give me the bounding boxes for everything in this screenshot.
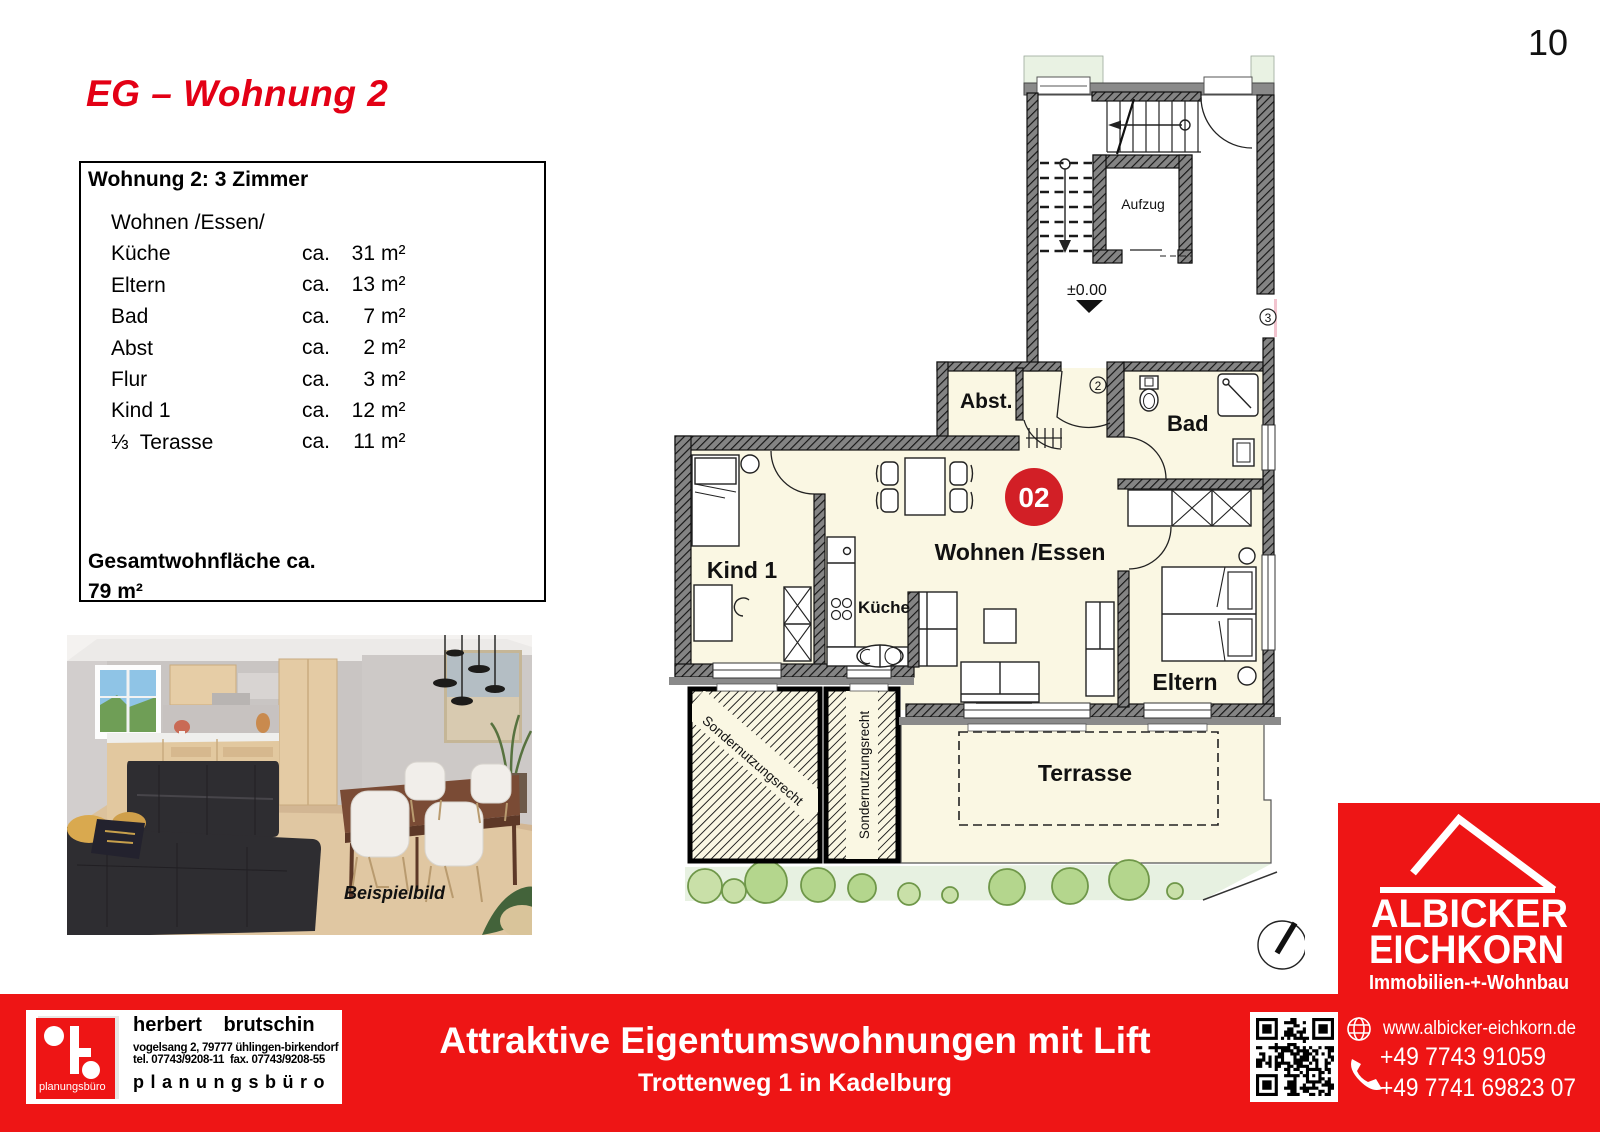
svg-text:Eltern: Eltern [1152,669,1217,695]
svg-text:Beispielbild: Beispielbild [344,883,446,903]
svg-text:planungsbüro: planungsbüro [39,1081,106,1093]
svg-text:±0.00: ±0.00 [1067,282,1107,299]
svg-text:EICHKORN: EICHKORN [1369,928,1564,972]
svg-text:Abst.: Abst. [960,390,1013,413]
svg-text:Terrasse: Terrasse [1038,760,1132,786]
svg-text:3: 3 [1265,311,1272,325]
svg-text:Aufzug: Aufzug [1121,196,1165,212]
svg-text:Küche: Küche [858,598,910,617]
svg-text:Immobilien-+-Wohnbau: Immobilien-+-Wohnbau [1369,972,1569,994]
svg-text:www.albicker-eichkorn.de: www.albicker-eichkorn.de [1382,1017,1576,1039]
svg-text:+49 7741 69823 07: +49 7741 69823 07 [1380,1074,1576,1102]
svg-text:2: 2 [1095,379,1102,393]
svg-text:Wohnen /Essen: Wohnen /Essen [935,539,1106,565]
svg-text:Bad: Bad [1167,411,1209,436]
svg-text:Kind 1: Kind 1 [707,557,777,583]
svg-text:Sondernutzungsrecht: Sondernutzungsrecht [857,711,872,840]
svg-text:+49 7743 91059: +49 7743 91059 [1380,1043,1546,1071]
svg-text:02: 02 [1018,482,1049,513]
